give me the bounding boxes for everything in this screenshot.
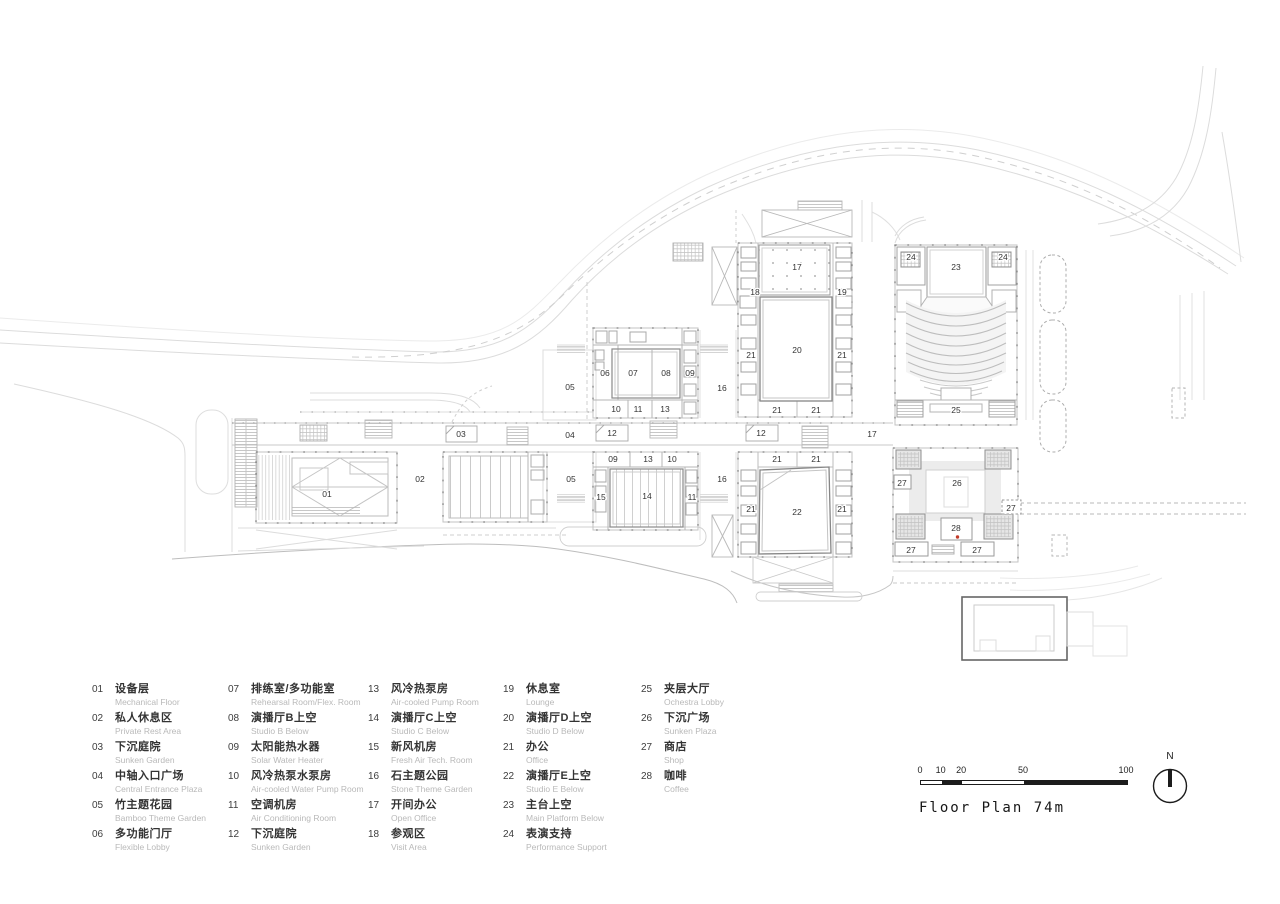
room-label: 21 — [837, 504, 847, 514]
legend-item: 20演播厅D上空Studio D Below — [503, 712, 607, 737]
legend-item-label-zh: 空调机房 — [251, 799, 336, 812]
legend-item-label-en: Visit Area — [391, 841, 427, 853]
room-label: 10 — [667, 454, 677, 464]
scale-bar: 0102050100 — [920, 765, 1140, 795]
room-label: 28 — [951, 523, 961, 533]
legend-item-label-en: Studio D Below — [526, 725, 592, 737]
legend-item-number: 12 — [228, 828, 251, 853]
room-label: 05 — [566, 474, 576, 484]
legend-item: 18参观区Visit Area — [368, 828, 479, 853]
room-label: 21 — [837, 350, 847, 360]
room-label: 01 — [322, 489, 332, 499]
legend-item-label-zh: 开间办公 — [391, 799, 437, 812]
legend-item-label-zh: 风冷热泵房 — [391, 683, 479, 696]
legend-item-number: 05 — [92, 799, 115, 824]
legend-item-label-zh: 演播厅C上空 — [391, 712, 457, 725]
room-label: 27 — [906, 545, 916, 555]
legend-item-label-zh: 休息室 — [526, 683, 561, 696]
legend-item-number: 20 — [503, 712, 526, 737]
legend-item: 22演播厅E上空Studio E Below — [503, 770, 607, 795]
legend-item: 02私人休息区Private Rest Area — [92, 712, 206, 737]
legend-item-number: 27 — [641, 741, 664, 766]
legend-item: 21办公Office — [503, 741, 607, 766]
room-label: 21 — [811, 405, 821, 415]
room-label: 04 — [565, 430, 575, 440]
legend-item: 13风冷热泵房Air-cooled Pump Room — [368, 683, 479, 708]
legend-column: 19休息室Lounge20演播厅D上空Studio D Below21办公Off… — [503, 683, 607, 857]
legend-item-label-zh: 竹主题花园 — [115, 799, 206, 812]
legend-item-label-zh: 设备层 — [115, 683, 180, 696]
legend-item: 07排练室/多功能室Rehearsal Room/Flex. Room — [228, 683, 364, 708]
room-label: 21 — [811, 454, 821, 464]
legend-item-label-zh: 多功能门厅 — [115, 828, 173, 841]
legend-item-label-en: Open Office — [391, 812, 437, 824]
legend-item-label-zh: 参观区 — [391, 828, 427, 841]
legend-item: 26下沉广场Sunken Plaza — [641, 712, 724, 737]
legend-item-number: 28 — [641, 770, 664, 795]
building-02-hall — [443, 452, 547, 522]
legend-item-label-zh: 夹层大厅 — [664, 683, 724, 696]
room-label: 27 — [972, 545, 982, 555]
room-label: 17 — [792, 262, 802, 272]
legend-item-label-zh: 演播厅E上空 — [526, 770, 591, 783]
room-label: 20 — [792, 345, 802, 355]
legend-item: 06多功能门厅Flexible Lobby — [92, 828, 206, 853]
legend-item-number: 01 — [92, 683, 115, 708]
legend-column: 25夹层大厅Ochestra Lobby26下沉广场Sunken Plaza27… — [641, 683, 724, 799]
legend-item-label-en: Air-cooled Pump Room — [391, 696, 479, 708]
room-label: 09 — [608, 454, 618, 464]
legend-item-label-zh: 办公 — [526, 741, 549, 754]
legend-item-number: 23 — [503, 799, 526, 824]
legend-item-label-en: Sunken Garden — [115, 754, 175, 766]
room-label: 12 — [756, 428, 766, 438]
legend-item-label-en: Fresh Air Tech. Room — [391, 754, 473, 766]
scale-bar-track — [920, 780, 1128, 785]
scale-tick-label: 0 — [917, 765, 922, 775]
room-label: 21 — [772, 454, 782, 464]
legend-item-label-zh: 演播厅B上空 — [251, 712, 317, 725]
room-label: 27 — [897, 478, 907, 488]
legend-item: 03下沉庭院Sunken Garden — [92, 741, 206, 766]
legend-item: 19休息室Lounge — [503, 683, 607, 708]
legend-item-number: 10 — [228, 770, 251, 795]
legend-item: 04中轴入口广场Central Entrance Plaza — [92, 770, 206, 795]
legend-item-number: 06 — [92, 828, 115, 853]
legend-item-number: 02 — [92, 712, 115, 737]
room-label: 21 — [772, 405, 782, 415]
legend-item-label-en: Central Entrance Plaza — [115, 783, 202, 795]
room-label: 21 — [746, 504, 756, 514]
north-arrow: N — [1149, 747, 1193, 807]
scale-tick-label: 50 — [1018, 765, 1028, 775]
legend-item-label-zh: 排练室/多功能室 — [251, 683, 361, 696]
scale-tick-label: 100 — [1118, 765, 1133, 775]
legend-item-label-en: Lounge — [526, 696, 561, 708]
legend-item-label-zh: 石主题公园 — [391, 770, 473, 783]
legend-item-label-en: Stone Theme Garden — [391, 783, 473, 795]
legend-item-label-en: Ochestra Lobby — [664, 696, 724, 708]
legend-item-label-en: Air-cooled Water Pump Room — [251, 783, 364, 795]
room-label: 21 — [746, 350, 756, 360]
room-label: 10 — [611, 404, 621, 414]
legend-item-label-zh: 下沉广场 — [664, 712, 716, 725]
legend-item-label-zh: 新风机房 — [391, 741, 473, 754]
legend-column: 01设备层Mechanical Floor02私人休息区Private Rest… — [92, 683, 206, 857]
room-label: 08 — [661, 368, 671, 378]
legend-item: 15新风机房Fresh Air Tech. Room — [368, 741, 479, 766]
legend-item: 08演播厅B上空Studio B Below — [228, 712, 364, 737]
legend-item-number: 03 — [92, 741, 115, 766]
legend-item-label-zh: 下沉庭院 — [115, 741, 175, 754]
legend-item-label-en: Studio C Below — [391, 725, 457, 737]
legend-item-label-en: Studio E Below — [526, 783, 591, 795]
legend-item: 11空调机房Air Conditioning Room — [228, 799, 364, 824]
room-label: 06 — [600, 368, 610, 378]
legend-item: 12下沉庭院Sunken Garden — [228, 828, 364, 853]
scale-bar-segment — [962, 781, 1024, 784]
room-label: 16 — [717, 474, 727, 484]
north-label: N — [1166, 751, 1173, 762]
legend-item-label-zh: 中轴入口广场 — [115, 770, 202, 783]
legend-item-number: 14 — [368, 712, 391, 737]
legend-item-label-en: Sunken Plaza — [664, 725, 716, 737]
legend-item-label-en: Rehearsal Room/Flex. Room — [251, 696, 361, 708]
room-label: 13 — [660, 404, 670, 414]
legend-item: 28咖啡Coffee — [641, 770, 724, 795]
legend-item-label-zh: 表演支持 — [526, 828, 607, 841]
legend-item-label-zh: 商店 — [664, 741, 687, 754]
legend-item-label-en: Bamboo Theme Garden — [115, 812, 206, 824]
legend-item-label-zh: 风冷热泵水泵房 — [251, 770, 364, 783]
legend-item: 10风冷热泵水泵房Air-cooled Water Pump Room — [228, 770, 364, 795]
room-label: 11 — [688, 492, 697, 502]
legend-item-number: 24 — [503, 828, 526, 853]
legend-item-label-en: Air Conditioning Room — [251, 812, 336, 824]
room-label: 16 — [717, 383, 727, 393]
legend-item-number: 11 — [228, 799, 251, 824]
floor-plan-sheet: 1718192423242021212121250607080905161011… — [0, 0, 1280, 904]
legend-item-label-zh: 主台上空 — [526, 799, 604, 812]
legend-item-label-en: Main Platform Below — [526, 812, 604, 824]
legend-item-label-en: Shop — [664, 754, 687, 766]
room-label: 03 — [456, 429, 466, 439]
room-label: 12 — [607, 428, 617, 438]
coffee-marker-dot — [956, 535, 959, 538]
room-label: 13 — [643, 454, 653, 464]
room-label: 05 — [565, 382, 575, 392]
scale-tick-label: 20 — [956, 765, 966, 775]
legend-item: 17开间办公Open Office — [368, 799, 479, 824]
legend-item-number: 16 — [368, 770, 391, 795]
building-annex-southeast — [962, 597, 1127, 660]
building-01-mechanical — [256, 452, 397, 523]
scale-bar-segment — [921, 781, 942, 784]
room-label: 22 — [792, 507, 802, 517]
legend-item-number: 04 — [92, 770, 115, 795]
legend-item: 16石主题公园Stone Theme Garden — [368, 770, 479, 795]
legend-item: 25夹层大厅Ochestra Lobby — [641, 683, 724, 708]
legend-item-label-en: Sunken Garden — [251, 841, 311, 853]
legend-item-label-en: Office — [526, 754, 549, 766]
legend-item: 27商店Shop — [641, 741, 724, 766]
legend-item-number: 18 — [368, 828, 391, 853]
room-label: 19 — [837, 287, 847, 297]
room-label: 09 — [685, 368, 695, 378]
legend-item-number: 21 — [503, 741, 526, 766]
room-label: 11 — [634, 404, 643, 414]
room-label: 07 — [628, 368, 638, 378]
legend-item-label-en: Private Rest Area — [115, 725, 181, 737]
legend-item-label-zh: 演播厅D上空 — [526, 712, 592, 725]
legend-item-number: 22 — [503, 770, 526, 795]
legend-item: 14演播厅C上空Studio C Below — [368, 712, 479, 737]
room-label: 24 — [906, 252, 916, 262]
legend-item-label-zh: 咖啡 — [664, 770, 689, 783]
plan-title: Floor Plan 74m — [919, 800, 1065, 816]
legend-item-number: 25 — [641, 683, 664, 708]
room-label: 24 — [998, 252, 1008, 262]
legend-item-label-zh: 下沉庭院 — [251, 828, 311, 841]
legend-item-number: 19 — [503, 683, 526, 708]
room-label: 26 — [952, 478, 962, 488]
legend-column: 13风冷热泵房Air-cooled Pump Room14演播厅C上空Studi… — [368, 683, 479, 857]
room-label: 02 — [415, 474, 425, 484]
legend-item-number: 09 — [228, 741, 251, 766]
legend-item: 05竹主题花园Bamboo Theme Garden — [92, 799, 206, 824]
legend-item-number: 26 — [641, 712, 664, 737]
scale-bar-segment — [1024, 781, 1127, 784]
legend-item: 01设备层Mechanical Floor — [92, 683, 206, 708]
room-label: 27 — [1006, 503, 1016, 513]
legend-item-number: 08 — [228, 712, 251, 737]
room-label: 23 — [951, 262, 961, 272]
legend-column: 07排练室/多功能室Rehearsal Room/Flex. Room08演播厅… — [228, 683, 364, 857]
legend-item-label-en: Flexible Lobby — [115, 841, 173, 853]
scale-tick-label: 10 — [936, 765, 946, 775]
legend-item-label-en: Coffee — [664, 783, 689, 795]
legend-item-label-zh: 太阳能热水器 — [251, 741, 323, 754]
legend-item-label-en: Performance Support — [526, 841, 607, 853]
building-theatre — [895, 245, 1017, 425]
room-label: 25 — [951, 405, 961, 415]
legend-item-number: 07 — [228, 683, 251, 708]
legend-item-number: 15 — [368, 741, 391, 766]
legend-item-label-zh: 私人休息区 — [115, 712, 181, 725]
legend-item: 09太阳能热水器Solar Water Heater — [228, 741, 364, 766]
legend-item-label-en: Studio B Below — [251, 725, 317, 737]
site-plan-drawing: 1718192423242021212121250607080905161011… — [0, 0, 1280, 670]
room-label: 17 — [867, 429, 877, 439]
legend-item-label-en: Mechanical Floor — [115, 696, 180, 708]
room-label: 18 — [750, 287, 760, 297]
legend-item-number: 17 — [368, 799, 391, 824]
legend-item-number: 13 — [368, 683, 391, 708]
room-label: 15 — [596, 492, 606, 502]
scale-bar-segment — [942, 781, 963, 784]
legend-item: 23主台上空Main Platform Below — [503, 799, 607, 824]
legend-item-label-en: Solar Water Heater — [251, 754, 323, 766]
room-label: 14 — [642, 491, 652, 501]
legend-item: 24表演支持Performance Support — [503, 828, 607, 853]
